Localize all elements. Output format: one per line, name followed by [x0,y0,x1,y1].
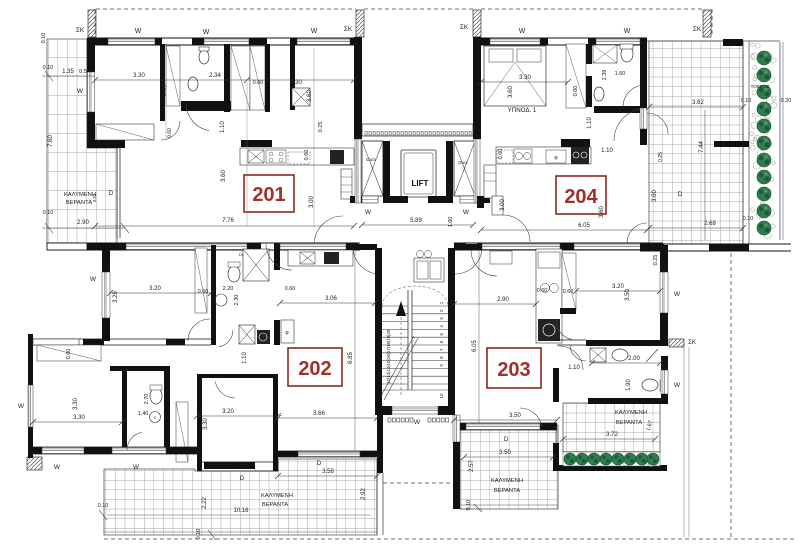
svg-text:3.60: 3.60 [652,190,658,202]
svg-text:ΣΚ: ΣΚ [688,340,696,346]
svg-text:ΥΠΝΟΔ. 1: ΥΠΝΟΔ. 1 [508,107,537,114]
svg-text:W: W [203,29,210,36]
svg-text:ΚΑΛΥΜΕΝΗ: ΚΑΛΥΜΕΝΗ [491,478,523,484]
svg-text:0.25: 0.25 [658,152,664,162]
svg-text:3.72: 3.72 [606,432,618,438]
svg-text:0.10: 0.10 [43,210,54,216]
svg-text:0.10: 0.10 [466,500,472,511]
svg-text:0.60: 0.60 [537,288,548,294]
svg-text:W: W [133,464,140,471]
svg-text:0.60: 0.60 [285,286,296,292]
svg-text:10: 10 [439,393,444,399]
svg-text:LIFT: LIFT [412,179,429,188]
svg-text:W: W [463,209,470,216]
svg-text:1.10: 1.10 [587,117,593,129]
svg-text:3.30: 3.30 [133,73,145,79]
svg-text:6.05: 6.05 [472,340,478,352]
svg-text:ΚΑΛΥΜΕΝΗ: ΚΑΛΥΜΕΝΗ [615,410,647,416]
svg-text:2.90: 2.90 [77,220,89,226]
svg-text:10.16: 10.16 [233,508,249,514]
svg-text:W: W [77,88,84,95]
svg-text:ΣΚ: ΣΚ [693,26,702,33]
svg-text:W: W [624,28,631,35]
svg-text:0.10: 0.10 [98,503,109,509]
svg-text:0.10: 0.10 [43,65,54,71]
svg-text:3.50: 3.50 [625,289,631,301]
svg-text:1.10: 1.10 [568,365,580,371]
svg-text:1.90: 1.90 [626,379,632,391]
svg-text:6.05: 6.05 [578,223,590,229]
svg-text:3.20: 3.20 [612,284,624,290]
svg-text:0.20: 0.20 [781,98,792,104]
svg-text:3.00: 3.00 [500,199,506,211]
svg-text:0.60: 0.60 [304,150,310,161]
svg-text:2.57: 2.57 [469,460,475,472]
svg-text:1.60: 1.60 [615,71,626,77]
svg-text:0.60: 0.60 [66,349,72,360]
svg-text:0.60: 0.60 [573,86,579,97]
svg-text:0.10: 0.10 [41,33,47,44]
svg-text:3.29: 3.29 [113,291,119,303]
svg-text:0.5: 0.5 [79,69,87,75]
svg-text:3.32: 3.32 [92,193,97,202]
svg-text:1.40: 1.40 [138,411,149,417]
svg-text:3.50: 3.50 [499,450,511,456]
svg-text:0.60: 0.60 [498,149,504,160]
svg-text:3.30: 3.30 [73,415,85,421]
svg-text:2.20: 2.20 [223,286,234,292]
svg-text:ΥΟΕ3 ΠΖ: ΥΟΕ3 ΠΖ [750,84,769,89]
svg-text:7.76: 7.76 [222,218,234,224]
svg-text:W: W [54,464,61,471]
svg-text:3.30: 3.30 [290,80,302,86]
svg-text:3.30: 3.30 [519,75,531,81]
svg-text:3.62: 3.62 [692,100,704,106]
svg-text:D: D [678,192,683,198]
svg-text:0.10: 0.10 [743,216,754,222]
svg-text:3.60: 3.60 [508,86,514,98]
svg-text:D: D [109,191,114,197]
svg-text:204: 204 [564,186,598,208]
svg-text:ΣΚ: ΣΚ [460,24,469,31]
svg-text:3.58: 3.58 [322,469,334,475]
svg-text:3.60: 3.60 [599,206,605,218]
svg-text:7.44: 7.44 [699,141,705,153]
svg-text:W: W [414,419,421,426]
svg-text:1.10: 1.10 [242,352,248,364]
svg-text:6.85: 6.85 [348,352,354,364]
svg-text:W: W [135,28,142,35]
svg-text:2.00: 2.00 [628,356,640,362]
svg-text:ΒΕΡΑΝΤΑ: ΒΕΡΑΝΤΑ [616,420,642,426]
svg-text:3.20: 3.20 [222,409,234,415]
svg-text:3.60: 3.60 [221,170,227,182]
svg-text:W: W [365,209,372,216]
svg-text:W: W [18,403,25,410]
svg-text:0.60: 0.60 [563,289,574,295]
svg-text:3.50: 3.50 [509,413,521,419]
svg-text:Duct: Duct [458,160,468,165]
svg-text:W: W [311,28,318,35]
svg-text:W: W [90,276,97,283]
svg-text:0.60: 0.60 [167,128,173,138]
svg-text:0.10: 0.10 [741,98,752,104]
svg-text:1.60: 1.60 [448,217,454,228]
svg-text:1.10: 1.10 [220,121,226,133]
svg-text:0.25: 0.25 [653,255,659,266]
svg-text:1.35: 1.35 [62,69,74,75]
svg-text:0.60: 0.60 [253,80,264,86]
svg-text:3.30: 3.30 [73,398,79,410]
svg-text:0.25: 0.25 [318,122,324,133]
svg-text:3.30: 3.30 [203,418,209,430]
svg-text:ΒΕΡΑΝΤΑ: ΒΕΡΑΝΤΑ [262,502,288,508]
svg-text:ΣΚ: ΣΚ [76,27,85,34]
svg-text:201: 201 [252,184,285,206]
svg-text:12|13|14|15|16|17|18|19|20: 12|13|14|15|16|17|18|19|20 [386,329,391,384]
svg-text:D: D [504,437,509,443]
svg-text:W: W [674,291,681,298]
svg-text:2.30: 2.30 [234,295,240,306]
svg-text:ΣΚ: ΣΚ [344,26,353,33]
svg-text:3.60: 3.60 [307,90,313,102]
svg-text:3.00: 3.00 [162,84,168,96]
svg-text:ΚΑΛΥΜΕΝΗ: ΚΑΛΥΜΕΝΗ [261,493,293,499]
svg-text:2.34: 2.34 [209,73,221,79]
svg-text:0.60: 0.60 [198,289,209,295]
svg-text:ΒΕΡΑΝΤΑ: ΒΕΡΑΝΤΑ [494,488,520,494]
svg-text:W: W [674,382,681,389]
svg-text:3.20: 3.20 [149,286,161,292]
svg-text:2.90: 2.90 [497,297,509,303]
svg-text:1.10: 1.10 [601,148,613,154]
svg-text:D: D [240,476,245,482]
svg-text:3.66: 3.66 [313,411,325,417]
svg-text:Duct: Duct [366,157,376,162]
svg-text:2.92: 2.92 [361,488,367,500]
svg-text:2.22: 2.22 [202,497,208,509]
svg-text:2.70: 2.70 [144,394,150,405]
svg-text:0.10: 0.10 [196,529,202,540]
svg-text:202: 202 [298,358,331,380]
svg-text:ΒΕΡΑΝΤΑ: ΒΕΡΑΝΤΑ [66,200,92,206]
svg-text:7.60: 7.60 [48,135,54,147]
svg-text:203: 203 [497,359,530,381]
svg-text:5.89: 5.89 [410,218,422,224]
svg-text:3.06: 3.06 [325,296,337,302]
svg-text:2.39: 2.39 [602,70,608,81]
svg-text:D: D [317,461,322,467]
svg-text:2.68: 2.68 [704,221,716,227]
svg-text:W: W [519,28,526,35]
